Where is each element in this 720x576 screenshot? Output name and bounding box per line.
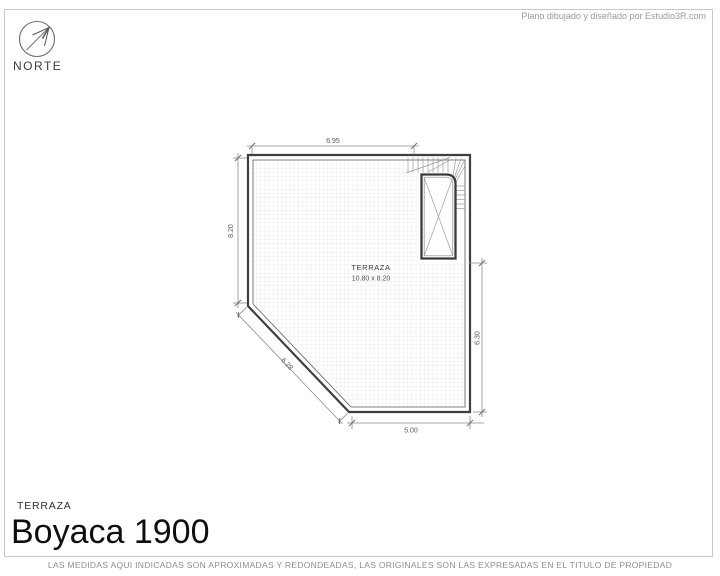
- plan-sheet: Plano dibujado y diseñado por Estudio3R.…: [0, 0, 720, 576]
- page-title: Boyaca 1900: [11, 515, 210, 551]
- room-name: TERRAZA: [351, 263, 390, 272]
- measurements-disclaimer: LAS MEDIDAS AQUI INDICADAS SON APROXIMAD…: [0, 560, 720, 570]
- dim-right: 6.30: [475, 331, 482, 345]
- north-arrow-icon: [20, 22, 55, 57]
- dim-top: 6.95: [326, 138, 340, 145]
- dim-diagonal: 6.28: [279, 357, 294, 372]
- floor-plan-drawing: 6.95 8.20 6.30 5.00 6.28 TERRAZA 10.80 x…: [0, 0, 720, 576]
- north-label: NORTE: [13, 59, 62, 73]
- dim-bottom: 5.00: [404, 428, 418, 435]
- room-size: 10.80 x 8.20: [352, 276, 391, 283]
- dim-left: 8.20: [228, 224, 235, 238]
- plan-type-label: TERRAZA: [17, 500, 72, 512]
